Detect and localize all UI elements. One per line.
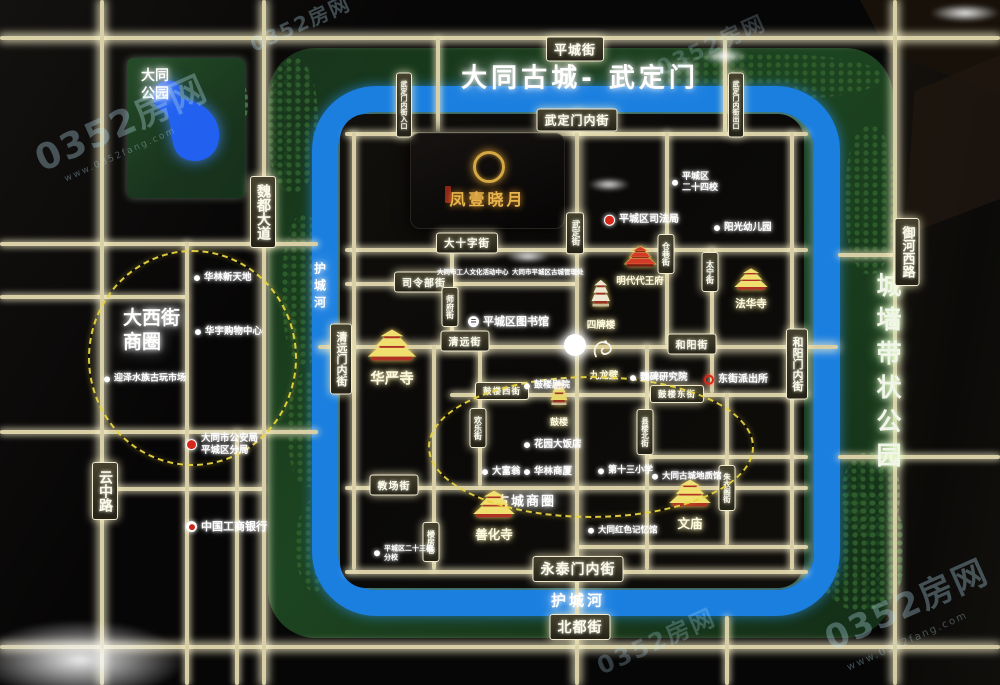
poi-label: 华林商厦 [534, 466, 572, 478]
road [575, 545, 808, 549]
road [725, 616, 729, 685]
poi-hualin-building: 华林商厦 [524, 466, 572, 478]
road [352, 132, 356, 570]
glare-spot [506, 250, 550, 263]
red-marker-icon [186, 440, 197, 451]
sign-jiaochang-street: 教场街 [370, 475, 419, 496]
poi-no13-primary-school: 第十三小学 [598, 465, 653, 476]
dot-marker-icon [524, 383, 530, 389]
poi-label: 东街派出所 [718, 374, 768, 387]
sign-gate-entry: 武定门内街入口 [396, 73, 412, 138]
dot-marker-icon [482, 469, 488, 475]
landmark: 华严寺 [363, 328, 421, 389]
poi-label: 平城区司法局 [619, 214, 679, 227]
landmark: 法华寺 [731, 267, 771, 311]
poi-dafuweng: 大富翁 [482, 466, 521, 478]
gucheng-cbd-dashed-circle [428, 376, 754, 518]
glare-spot [930, 4, 1000, 22]
poi-garden-hotel: 花园大饭店 [524, 439, 582, 451]
map-board: 大同 公园 大同古城- 武定门 城墙带状公园 大西街 商圈 古城商圈 护城河 护… [0, 0, 1000, 685]
road [235, 430, 239, 685]
road [838, 455, 1000, 459]
landmark-label: 华严寺 [370, 368, 414, 389]
poi-huayu-shopping-center: 华宇购物中心 [195, 326, 262, 338]
poi-red-memory-museum: 大同红色记忆馆 [588, 526, 658, 537]
glare-spot [700, 48, 748, 64]
poi-geology-museum: 大同古城地质馆 [652, 472, 722, 483]
sign-yongtaimen-inner-street: 永泰门内街 [533, 556, 624, 582]
road [0, 36, 1000, 40]
poi-no23-school-branch: 平城区二十三校分校 [374, 544, 433, 562]
poi-label: 大富翁 [492, 466, 521, 478]
poi-label: 大同红色记忆馆 [598, 526, 658, 537]
sign-taining-street: 太宁街 [702, 252, 719, 292]
landmark-label: 法华寺 [735, 296, 767, 311]
sipailou-junction-circle [564, 334, 586, 356]
sign-dashizi-street: 大十字街 [436, 233, 498, 254]
dot-marker-icon [524, 442, 530, 448]
glare-spot [0, 620, 185, 685]
dot-marker-icon [195, 329, 201, 335]
dot-marker-icon [652, 474, 658, 480]
sign-beidu-street: 北都街 [550, 614, 611, 640]
dot-marker-icon [374, 550, 380, 556]
dot-marker-icon [104, 376, 110, 382]
poi-ancient-city-admin-office: 大同市平城区古城管理处 [512, 268, 584, 276]
sign-yunzhong-road: 云中路 [92, 462, 118, 520]
road [436, 38, 440, 134]
sign-gate-exit: 武定门内街出口 [728, 73, 744, 138]
poi-label: 大同市平城区古城管理处 [512, 268, 584, 276]
poi-label: 大同市工人文化活动中心 [437, 268, 509, 276]
sign-heyangmen-inner-street: 和阳门内街 [786, 329, 808, 400]
landmark-label: 明代代王府 [616, 273, 664, 287]
city-title: 大同古城- 武定门 [461, 58, 699, 95]
dot-marker-icon [524, 469, 530, 475]
poi-no24-school: 平城区二十四校 [672, 172, 718, 195]
fahua-temple-icon [731, 267, 771, 295]
dot-marker-icon [598, 468, 604, 474]
poi-workers-cultural-center: 大同市工人文化活动中心 [437, 268, 509, 276]
landmark-label: 善化寺 [475, 524, 513, 543]
dot-marker-icon [194, 275, 200, 281]
poi-label: 平城区二十四校 [682, 172, 718, 195]
poi-pingcheng-library: 平城区图书馆 [468, 315, 549, 329]
project-name: 凤壹晓月 [411, 186, 564, 210]
poi-justice-bureau: 平城区司法局 [604, 214, 679, 227]
project-logo-icon [473, 151, 505, 183]
poi-label: 大同古城地质馆 [662, 472, 722, 483]
huayan-temple-icon [363, 328, 421, 367]
dot-marker-icon [588, 528, 594, 534]
project-logo-plaque: 凤壹晓月 [410, 133, 565, 229]
sign-heyang-street: 和阳街 [668, 334, 717, 355]
wall-park-label: 城墙带状公园 [869, 272, 905, 476]
poi-label: 大同市公安局平城区分局 [201, 433, 258, 457]
poi-label: 中国工商银行 [201, 520, 267, 534]
sign-qingyuanmen-inner-street: 清远门内街 [330, 324, 352, 395]
sipailou-icon [590, 279, 612, 316]
poi-yingze-antique-market: 迎泽水族古玩市场 [104, 373, 186, 384]
sign-wudingmen-inner-street: 武定门内街 [536, 109, 617, 132]
tree-cluster [845, 126, 895, 274]
dai-palace-icon [621, 245, 659, 272]
poi-weibei-research-institute: 魏碑研究院 [630, 372, 688, 384]
bank-icon [186, 522, 197, 533]
sign-qingyuan-street: 清远街 [441, 331, 490, 352]
sign-yuhe-west-road: 御河西路 [895, 218, 920, 286]
dot-marker-icon [630, 375, 636, 381]
landmark: 明代代王府 [616, 245, 664, 287]
tree-cluster [268, 58, 318, 193]
landmark: 九龙壁 [589, 337, 619, 382]
sign-pingcheng-street: 平城街 [546, 37, 604, 62]
poi-icbc-bank: 中国工商银行 [186, 520, 267, 534]
poi-hualin-xintiandi: 华林新天地 [194, 272, 252, 284]
poi-sunshine-kindergarten: 阳光幼儿园 [714, 222, 772, 234]
library-icon [468, 317, 479, 328]
poi-label: 鼓楼剧院 [534, 380, 570, 391]
poi-public-security-bureau: 大同市公安局平城区分局 [186, 433, 258, 457]
sign-weidu-avenue: 魏都大道 [250, 176, 276, 248]
dot-marker-icon [714, 225, 720, 231]
poi-label: 迎泽水族古玩市场 [114, 373, 186, 384]
poi-dongjie-police-station: 东街派出所 [704, 374, 768, 387]
glare-spot [588, 178, 630, 191]
datong-park-label: 大同 公园 [141, 67, 169, 103]
landmark: 四牌楼 [587, 279, 616, 331]
red-marker-icon [604, 215, 615, 226]
sign-shifu-street: 师府街 [442, 287, 459, 327]
moat-label-left: 护城河 [312, 262, 329, 313]
sign-wuding-street: 武定街 [566, 212, 584, 254]
poi-label: 第十三小学 [608, 465, 653, 476]
landmark-label: 文庙 [677, 513, 702, 532]
poi-label: 平城区图书馆 [483, 315, 549, 329]
landmark-label: 四牌楼 [587, 317, 616, 331]
poi-label: 阳光幼儿园 [724, 222, 772, 234]
poi-label: 华宇购物中心 [205, 326, 262, 338]
poi-label: 平城区二十三校分校 [384, 544, 433, 562]
road [838, 253, 894, 257]
dot-marker-icon [672, 180, 678, 186]
poi-label: 魏碑研究院 [640, 372, 688, 384]
ring-marker-icon [704, 375, 714, 385]
poi-gulou-theater: 鼓楼剧院 [524, 380, 570, 391]
moat-label-bottom: 护城河 [551, 590, 605, 611]
road [345, 282, 576, 286]
poi-label: 花园大饭店 [534, 439, 582, 451]
nine-dragon-wall-icon [589, 337, 619, 367]
poi-label: 华林新天地 [204, 272, 252, 284]
